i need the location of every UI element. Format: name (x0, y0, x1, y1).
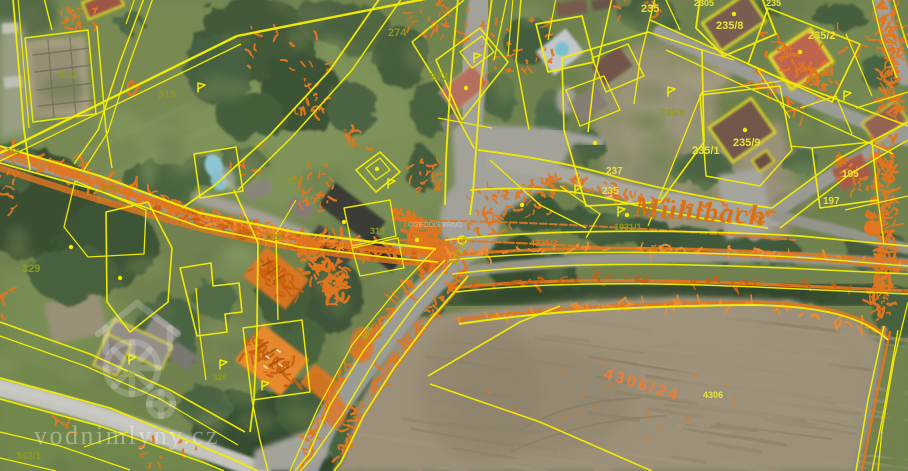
svg-text:4306: 4306 (703, 390, 723, 400)
svg-text:vodnimlyny.cz: vodnimlyny.cz (34, 421, 220, 450)
svg-text:235: 235 (766, 0, 781, 8)
svg-text:315: 315 (158, 89, 176, 101)
svg-text:274: 274 (388, 27, 407, 39)
svg-text:©GEODIS BRNO: ©GEODIS BRNO (408, 221, 463, 229)
svg-text:273: 273 (430, 71, 448, 83)
svg-text:235/8: 235/8 (716, 20, 744, 32)
svg-text:235: 235 (602, 186, 619, 197)
svg-text:329: 329 (22, 263, 40, 275)
svg-text:2305: 2305 (694, 0, 714, 8)
svg-text:316: 316 (102, 184, 117, 194)
svg-text:326: 326 (213, 373, 227, 382)
svg-text:235/2: 235/2 (808, 30, 836, 42)
svg-text:195: 195 (842, 169, 859, 180)
svg-text:4325/2: 4325/2 (530, 238, 558, 248)
svg-text:237: 237 (606, 166, 623, 177)
svg-text:313: 313 (58, 69, 76, 81)
svg-text:314: 314 (6, 147, 20, 156)
svg-text:235: 235 (641, 3, 659, 15)
svg-text:1031/1: 1031/1 (614, 222, 642, 232)
svg-text:322/1: 322/1 (264, 233, 285, 242)
svg-text:235/6: 235/6 (660, 108, 685, 119)
svg-text:235/9: 235/9 (733, 137, 761, 149)
svg-text:319: 319 (370, 226, 385, 236)
svg-text:343/1: 343/1 (16, 451, 41, 462)
svg-text:321: 321 (286, 176, 301, 186)
svg-text:197: 197 (823, 196, 840, 207)
svg-text:235/1: 235/1 (692, 145, 720, 157)
